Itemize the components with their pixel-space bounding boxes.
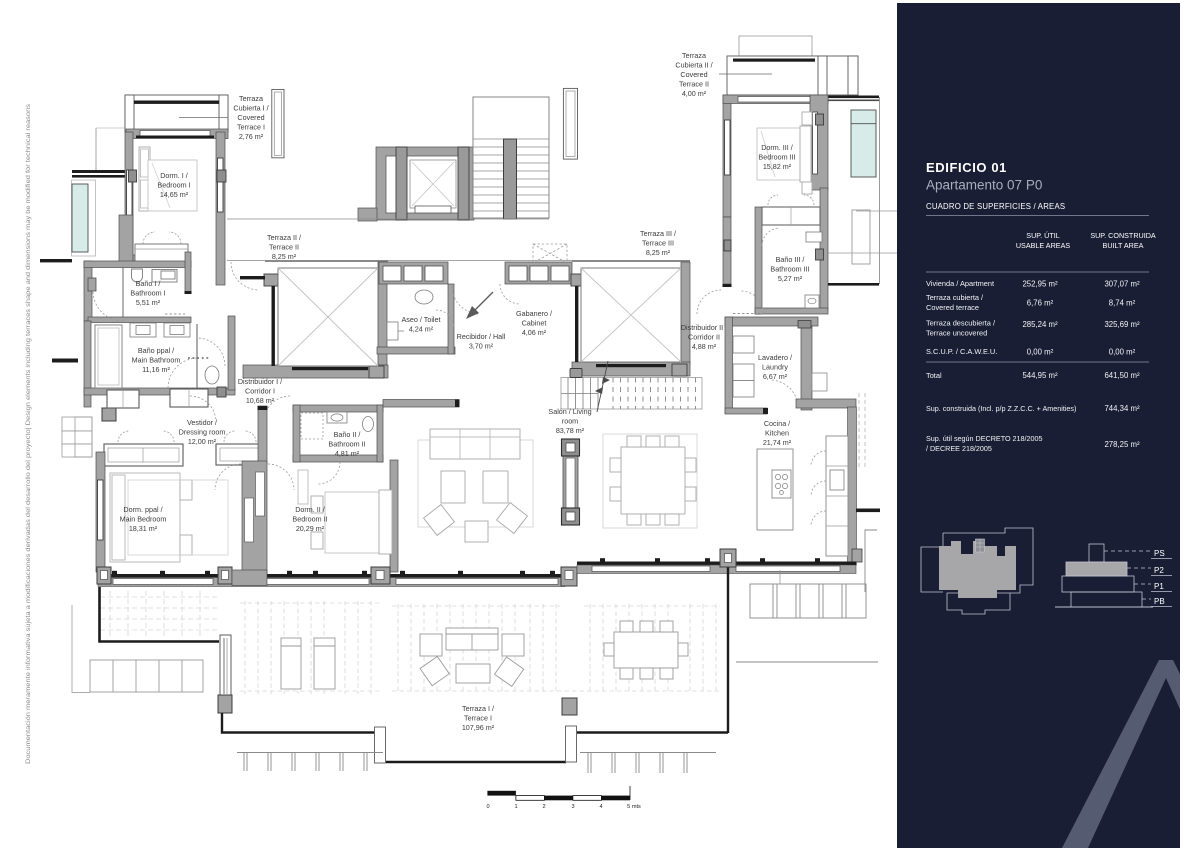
svg-text:Bedroom I: Bedroom I [157,181,190,190]
svg-text:Recibidor / Hall: Recibidor / Hall [457,332,506,341]
svg-text:4: 4 [599,804,602,810]
svg-text:Terrace I: Terrace I [237,123,265,132]
svg-text:Total: Total [926,371,942,380]
svg-text:Covered terrace: Covered terrace [926,303,979,312]
svg-text:Baño I /: Baño I / [136,279,161,288]
svg-text:4,81 m²: 4,81 m² [335,449,360,458]
svg-text:Terraza: Terraza [239,94,263,103]
svg-text:Bedroom III: Bedroom III [758,153,795,162]
svg-text:Cocina /: Cocina / [764,419,790,428]
svg-text:CUADRO DE SUPERFICIES / AREAS: CUADRO DE SUPERFICIES / AREAS [926,202,1065,211]
svg-text:Baño II /: Baño II / [334,430,361,439]
svg-text:room: room [562,417,578,426]
svg-text:Terrace II: Terrace II [679,80,709,89]
svg-text:Distribuidor II /: Distribuidor II / [681,323,727,332]
svg-text:Covered: Covered [680,70,707,79]
svg-text:Terraza descubierta /: Terraza descubierta / [926,319,996,328]
svg-text:Dressing room: Dressing room [179,428,226,437]
svg-text:Terraza II /: Terraza II / [267,233,301,242]
svg-text:5 mts: 5 mts [627,804,641,810]
svg-text:Bathroom III: Bathroom III [770,265,809,274]
svg-text:Terrace II: Terrace II [269,243,299,252]
svg-text:6,67 m²: 6,67 m² [763,372,788,381]
svg-text:4,88 m²: 4,88 m² [692,342,717,351]
svg-text:Terraza cubierta /: Terraza cubierta / [926,293,984,302]
svg-text:Terraza III /: Terraza III / [640,229,676,238]
svg-text:744,34 m²: 744,34 m² [1104,404,1140,413]
svg-text:Bedroom II: Bedroom II [292,515,327,524]
svg-text:Sup. útil según DECRETO 218/20: Sup. útil según DECRETO 218/2005 [926,434,1043,443]
svg-text:0: 0 [486,804,489,810]
svg-text:Corridor I: Corridor I [245,387,275,396]
svg-text:Main Bathroom: Main Bathroom [132,356,181,365]
svg-text:Dorm. II /: Dorm. II / [295,505,325,514]
svg-text:641,50 m²: 641,50 m² [1104,371,1140,380]
svg-text:14,65 m²: 14,65 m² [160,190,189,199]
svg-text:P2: P2 [1154,566,1164,575]
svg-text:Distribuidor I /: Distribuidor I / [238,377,282,386]
svg-text:5,27 m²: 5,27 m² [778,274,803,283]
svg-text:Salón / Living: Salón / Living [548,407,591,416]
svg-text:1: 1 [514,804,517,810]
svg-text:8,25 m²: 8,25 m² [272,252,297,261]
svg-text:285,24 m²: 285,24 m² [1022,320,1058,329]
svg-text:21,74 m²: 21,74 m² [763,438,792,447]
svg-text:S.C.U.P. / C.A.W.E.U.: S.C.U.P. / C.A.W.E.U. [926,347,997,356]
svg-text:Terrace I: Terrace I [464,714,492,723]
svg-text:Kitchen: Kitchen [765,429,789,438]
svg-text:USABLE AREAS: USABLE AREAS [1016,241,1071,250]
svg-text:10,68 m²: 10,68 m² [246,396,275,405]
svg-text:Baño ppal /: Baño ppal / [138,346,174,355]
svg-text:Sup. construida (Incl. p/p Z.Z: Sup. construida (Incl. p/p Z.Z.C.C. + Am… [926,404,1076,413]
svg-text:Cubierta I /: Cubierta I / [233,104,268,113]
svg-text:P1: P1 [1154,582,1164,591]
svg-text:83,78 m²: 83,78 m² [556,426,585,435]
svg-text:3,70 m²: 3,70 m² [469,342,494,351]
svg-text:Main Bedroom: Main Bedroom [120,515,167,524]
svg-text:Vestidor /: Vestidor / [187,418,217,427]
svg-text:5,51 m²: 5,51 m² [136,298,161,307]
svg-text:Covered: Covered [237,113,264,122]
svg-text:325,69 m²: 325,69 m² [1104,320,1140,329]
svg-text:Documentación meramente inform: Documentación meramente informativa suje… [26,104,32,764]
svg-text:/ DECREE 218/2005: / DECREE 218/2005 [926,444,992,453]
svg-text:278,25 m²: 278,25 m² [1104,440,1140,449]
svg-text:4,06 m²: 4,06 m² [522,328,547,337]
svg-text:20,29 m²: 20,29 m² [296,524,325,533]
svg-text:BUILT AREA: BUILT AREA [1103,241,1144,250]
svg-text:6,76 m²: 6,76 m² [1027,299,1054,308]
svg-text:15,82 m²: 15,82 m² [763,162,792,171]
svg-text:18,31 m²: 18,31 m² [129,524,158,533]
svg-text:Bathroom II: Bathroom II [328,440,365,449]
svg-text:2,76 m²: 2,76 m² [239,132,264,141]
svg-text:107,96 m²: 107,96 m² [462,723,495,732]
svg-text:SUP. ÚTIL: SUP. ÚTIL [1026,231,1059,240]
svg-text:Bathroom I: Bathroom I [130,289,165,298]
svg-text:12,00 m²: 12,00 m² [188,437,217,446]
svg-text:EDIFICIO 01: EDIFICIO 01 [926,160,1007,175]
svg-text:11,16 m²: 11,16 m² [142,365,170,374]
svg-text:Dorm. ppal /: Dorm. ppal / [123,505,162,514]
svg-text:Terrace uncovered: Terrace uncovered [926,329,987,338]
svg-text:Aseo / Toilet: Aseo / Toilet [401,315,440,324]
svg-text:Terraza: Terraza [682,51,706,60]
svg-text:Gabanero /: Gabanero / [516,309,552,318]
svg-text:8,74 m²: 8,74 m² [1109,299,1136,308]
svg-text:8,25 m²: 8,25 m² [646,248,671,257]
svg-text:Dorm. I /: Dorm. I / [160,171,188,180]
svg-text:PS: PS [1154,549,1165,558]
svg-text:4,24 m²: 4,24 m² [409,325,434,334]
svg-text:Apartamento 07 P0: Apartamento 07 P0 [926,178,1042,193]
svg-text:0,00 m²: 0,00 m² [1027,348,1054,357]
svg-text:Laundry: Laundry [762,363,788,372]
svg-text:3: 3 [571,804,574,810]
svg-text:Corridor II: Corridor II [688,333,720,342]
svg-text:Lavadero /: Lavadero / [758,353,792,362]
svg-text:Cubierta II /: Cubierta II / [675,61,712,70]
svg-text:0,00 m²: 0,00 m² [1109,348,1136,357]
svg-text:PB: PB [1154,597,1165,606]
svg-text:SUP. CONSTRUIDA: SUP. CONSTRUIDA [1090,231,1156,240]
svg-text:Vivienda / Apartment: Vivienda / Apartment [926,279,994,288]
svg-text:Terrace III: Terrace III [642,239,674,248]
svg-text:544,95 m²: 544,95 m² [1022,371,1058,380]
svg-text:252,95 m²: 252,95 m² [1022,280,1058,289]
svg-text:307,07 m²: 307,07 m² [1104,280,1140,289]
svg-text:Cabinet: Cabinet [522,319,547,328]
svg-text:Terraza I /: Terraza I / [462,704,494,713]
svg-text:2: 2 [542,804,545,810]
svg-text:Dorm. III /: Dorm. III / [761,143,793,152]
svg-text:Baño III /: Baño III / [776,255,805,264]
svg-text:4,00 m²: 4,00 m² [682,89,707,98]
